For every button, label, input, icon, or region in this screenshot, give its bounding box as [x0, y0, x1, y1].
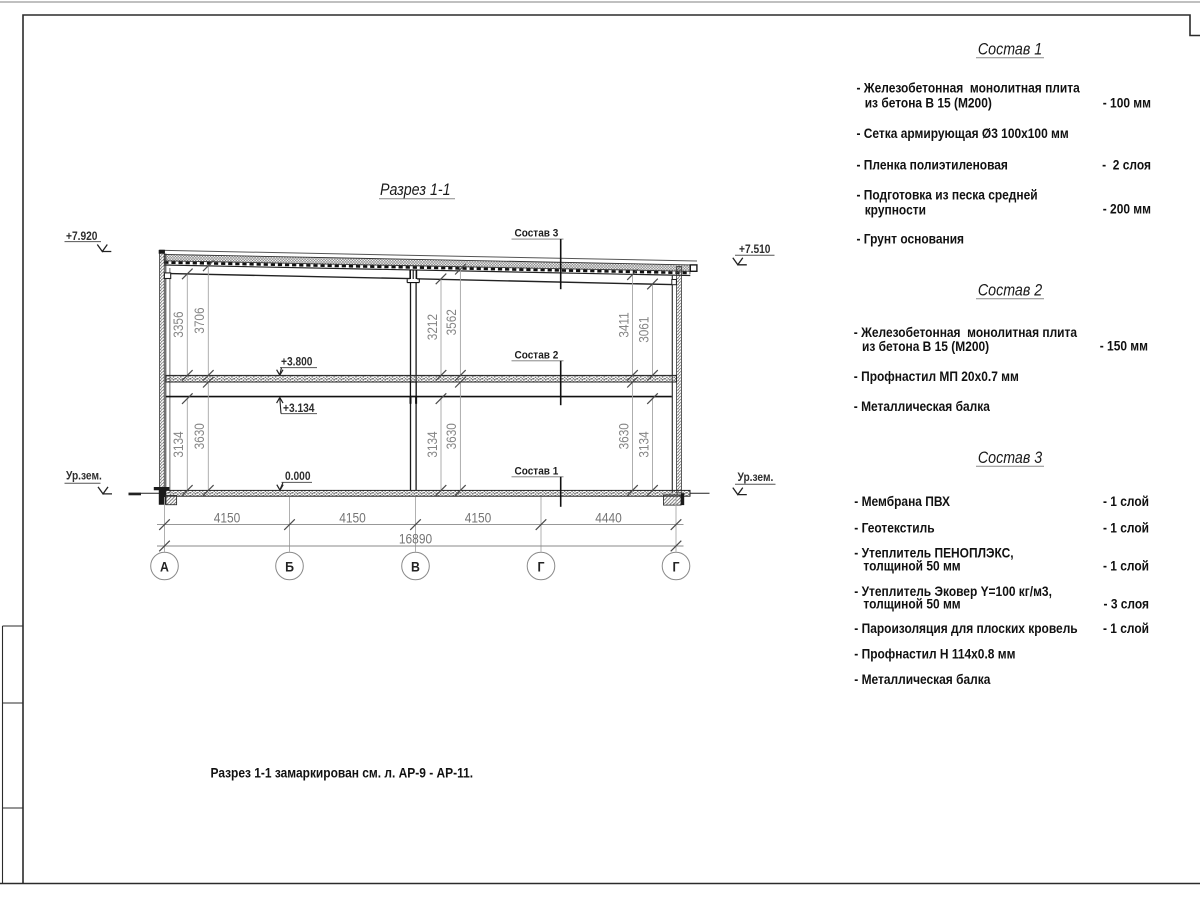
svg-text:Б: Б: [285, 559, 294, 575]
svg-text:3134: 3134: [425, 431, 440, 457]
svg-text:Состав 1: Состав 1: [978, 41, 1042, 59]
svg-text:В: В: [411, 559, 420, 575]
svg-text:- 100 мм: - 100 мм: [1103, 95, 1151, 111]
svg-text:3212: 3212: [425, 314, 440, 340]
svg-text:Состав 1: Состав 1: [515, 465, 559, 478]
svg-text:толщиной 50 мм: толщиной 50 мм: [863, 558, 960, 574]
svg-text:3630: 3630: [192, 423, 207, 449]
svg-text:из бетона В 15 (М200): из бетона В 15 (М200): [862, 338, 989, 354]
svg-text:3134: 3134: [637, 431, 652, 457]
svg-text:- 1 слой: - 1 слой: [1103, 493, 1149, 509]
svg-text:- 2 слоя: - 2 слоя: [1102, 157, 1151, 173]
svg-text:Ур.зем.: Ур.зем.: [738, 471, 774, 484]
svg-text:- Сетка армирующая Ø3 100х100: - Сетка армирующая Ø3 100х100 мм: [857, 125, 1069, 141]
svg-text:Г: Г: [673, 559, 680, 575]
svg-text:3411: 3411: [617, 312, 632, 337]
svg-text:крупности: крупности: [865, 202, 926, 218]
svg-text:+7.510: +7.510: [739, 243, 770, 256]
svg-text:- Мембрана ПВХ: - Мембрана ПВХ: [854, 493, 950, 509]
svg-text:4150: 4150: [465, 510, 492, 526]
svg-text:Разрез 1-1 замаркирован см. л.: Разрез 1-1 замаркирован см. л. АР-9 - АР…: [211, 765, 474, 781]
svg-text:3562: 3562: [445, 309, 460, 335]
svg-text:16890: 16890: [399, 531, 432, 547]
svg-text:Разрез 1-1: Разрез 1-1: [380, 181, 451, 199]
svg-text:3630: 3630: [617, 423, 632, 449]
svg-text:толщиной 50 мм: толщиной 50 мм: [863, 596, 960, 612]
svg-text:- 1 слой: - 1 слой: [1103, 620, 1149, 636]
svg-text:0.000: 0.000: [285, 470, 311, 483]
svg-text:Состав 2: Состав 2: [978, 282, 1043, 300]
svg-text:- Пароизоляция для плоских кро: - Пароизоляция для плоских кровель: [854, 620, 1077, 636]
svg-text:Состав 3: Состав 3: [978, 449, 1043, 467]
svg-text:+3.134: +3.134: [283, 402, 314, 415]
svg-text:4150: 4150: [339, 510, 366, 526]
svg-text:- Металлическая балка: - Металлическая балка: [854, 671, 991, 687]
svg-text:- Пленка полиэтиленовая: - Пленка полиэтиленовая: [857, 157, 1008, 173]
svg-text:3630: 3630: [445, 423, 460, 449]
svg-text:- 200 мм: - 200 мм: [1103, 201, 1151, 217]
svg-text:- 3 слоя: - 3 слоя: [1104, 596, 1149, 612]
svg-text:- Железобетонная монолитная п: - Железобетонная монолитная плита: [857, 80, 1081, 96]
svg-text:4150: 4150: [214, 510, 241, 526]
svg-text:- 150 мм: - 150 мм: [1100, 338, 1148, 354]
svg-text:Г: Г: [538, 559, 545, 575]
svg-text:3356: 3356: [171, 311, 186, 337]
svg-text:4440: 4440: [595, 510, 622, 526]
svg-text:- 1 слой: - 1 слой: [1103, 558, 1149, 574]
svg-text:3061: 3061: [637, 317, 652, 343]
svg-text:А: А: [160, 559, 169, 575]
svg-text:- Профнастил МП 20х0.7 мм: - Профнастил МП 20х0.7 мм: [854, 368, 1019, 384]
svg-text:+3.800: +3.800: [281, 356, 312, 369]
svg-text:- 1 слой: - 1 слой: [1103, 520, 1149, 536]
svg-text:Ур.зем.: Ур.зем.: [66, 470, 102, 483]
svg-text:- Металлическая балка: - Металлическая балка: [854, 398, 991, 414]
svg-text:- Подготовка из песка средней: - Подготовка из песка средней: [857, 187, 1038, 203]
svg-text:Состав 2: Состав 2: [515, 349, 559, 362]
svg-text:Состав 3: Состав 3: [515, 227, 559, 240]
svg-text:- Грунт основания: - Грунт основания: [857, 231, 965, 247]
svg-text:- Геотекстиль: - Геотекстиль: [854, 520, 934, 536]
svg-text:3706: 3706: [192, 307, 207, 333]
svg-text:из бетона В 15 (М200): из бетона В 15 (М200): [865, 95, 992, 111]
svg-text:- Профнастил Н 114х0.8 мм: - Профнастил Н 114х0.8 мм: [854, 646, 1015, 662]
svg-text:3134: 3134: [171, 431, 186, 457]
